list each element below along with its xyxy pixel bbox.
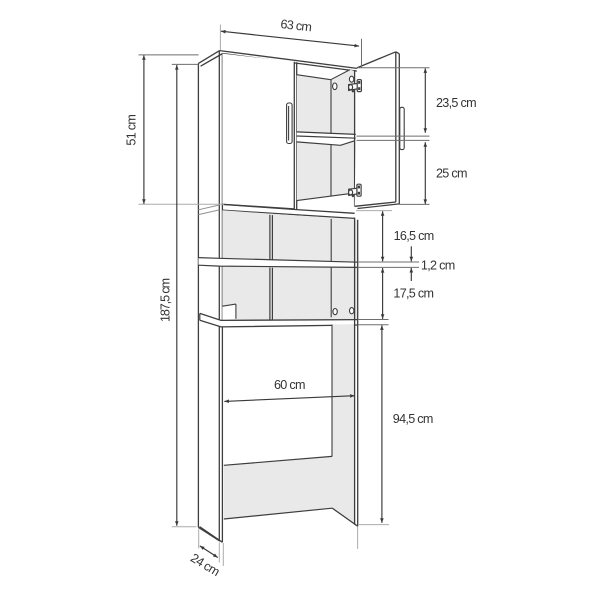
svg-text:23,5 cm: 23,5 cm [436, 96, 476, 110]
svg-text:16,5 cm: 16,5 cm [394, 229, 434, 243]
svg-text:94,5 cm: 94,5 cm [393, 412, 433, 426]
svg-text:187,5 cm: 187,5 cm [159, 278, 173, 322]
svg-text:24 cm: 24 cm [188, 551, 222, 579]
svg-text:1,2 cm: 1,2 cm [421, 258, 455, 272]
svg-text:63 cm: 63 cm [280, 17, 312, 34]
svg-text:60 cm: 60 cm [274, 378, 305, 392]
svg-text:51 cm: 51 cm [125, 115, 139, 146]
svg-text:25 cm: 25 cm [436, 166, 467, 180]
svg-text:17,5 cm: 17,5 cm [393, 287, 433, 301]
